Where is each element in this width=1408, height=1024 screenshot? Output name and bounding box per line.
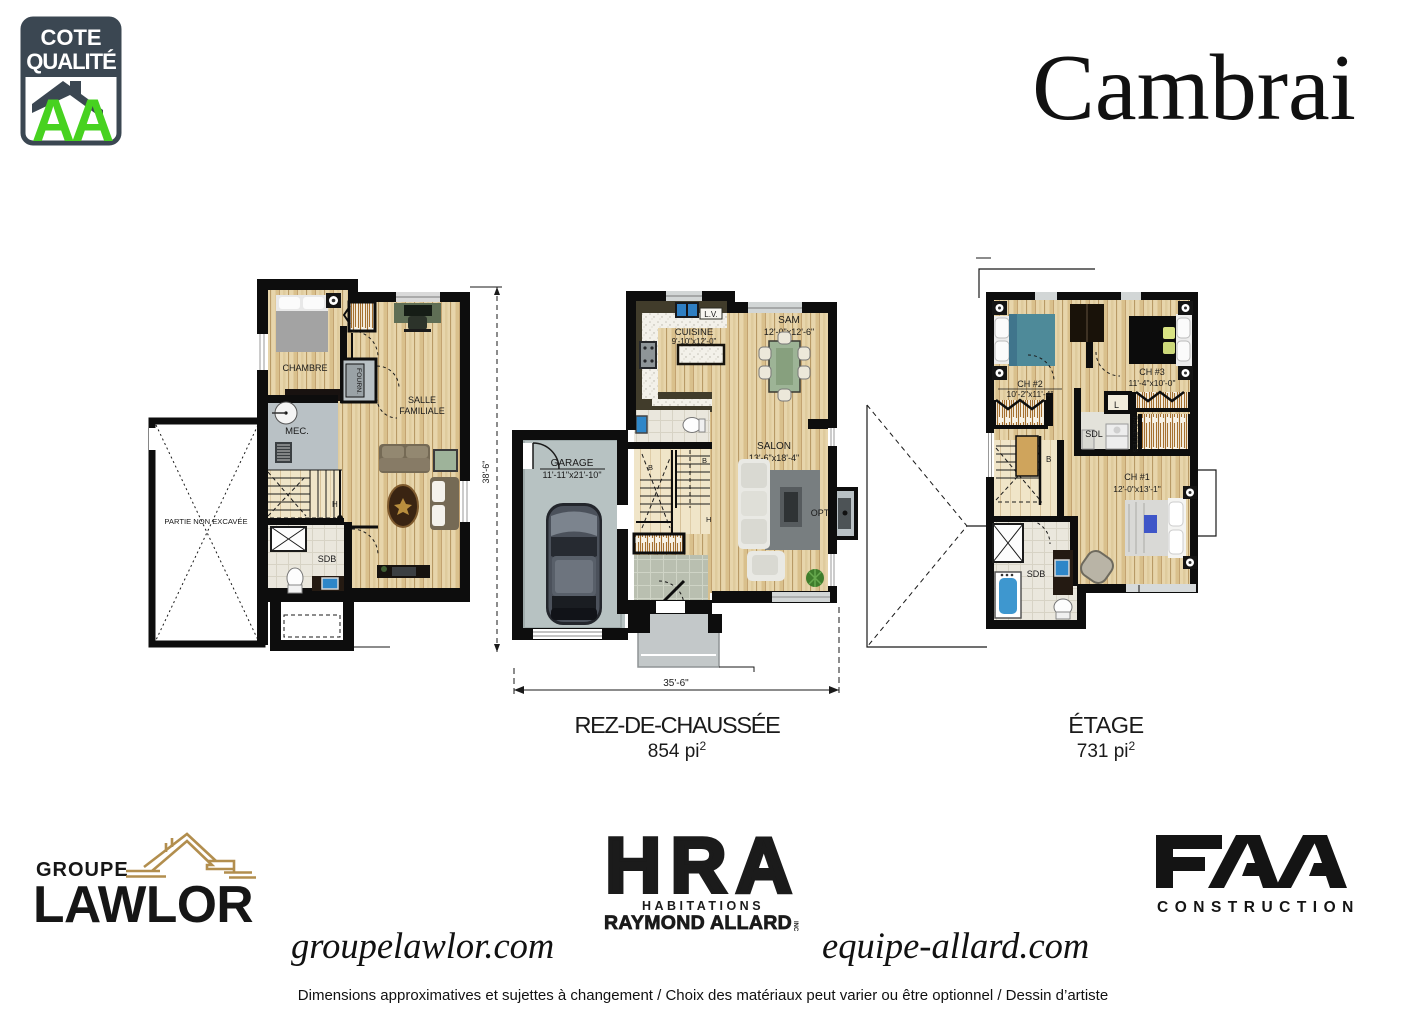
svg-text:INC: INC <box>792 921 798 932</box>
svg-text:HABITATIONS: HABITATIONS <box>642 899 764 913</box>
svg-text:FOURN.: FOURN. <box>355 368 362 394</box>
svg-text:SAM: SAM <box>778 315 800 326</box>
svg-text:SALLE: SALLE <box>408 395 436 405</box>
svg-text:Dimensions approximatives et s: Dimensions approximatives et sujettes à … <box>298 987 1108 1004</box>
svg-text:11'-11"x21'-10": 11'-11"x21'-10" <box>542 470 601 480</box>
svg-text:GARAGE: GARAGE <box>551 458 594 469</box>
svg-text:H: H <box>706 515 711 524</box>
svg-text:TABLETTES: TABLETTES <box>1131 416 1138 453</box>
svg-text:731 pi2: 731 pi2 <box>1077 739 1136 762</box>
svg-text:CH #1: CH #1 <box>1124 472 1150 482</box>
svg-text:FAMILIALE: FAMILIALE <box>399 406 445 416</box>
svg-text:PARTIE NON EXCAVÉE: PARTIE NON EXCAVÉE <box>164 517 247 526</box>
svg-text:B: B <box>1046 455 1051 464</box>
svg-text:RAYMOND ALLARD: RAYMOND ALLARD <box>604 912 792 934</box>
svg-text:COTE: COTE <box>40 25 101 50</box>
svg-text:groupelawlor.com: groupelawlor.com <box>291 925 554 966</box>
svg-text:L.V.: L.V. <box>704 310 718 319</box>
svg-text:SDL: SDL <box>1085 429 1103 439</box>
svg-text:CONSTRUCTION: CONSTRUCTION <box>1157 899 1360 916</box>
svg-text:SALON: SALON <box>757 441 791 452</box>
svg-text:ÉTAGE: ÉTAGE <box>1068 712 1143 738</box>
svg-text:B: B <box>702 456 707 465</box>
svg-text:CHAMBRE: CHAMBRE <box>282 363 327 373</box>
svg-text:OPT: OPT <box>811 508 830 518</box>
svg-text:854 pi2: 854 pi2 <box>648 739 707 762</box>
svg-text:QUALITÉ: QUALITÉ <box>26 49 116 74</box>
svg-text:B: B <box>648 463 653 472</box>
svg-text:LAWLOR: LAWLOR <box>33 875 253 933</box>
svg-text:10'-2"x11'-4": 10'-2"x11'-4" <box>1007 389 1054 399</box>
svg-text:SDB: SDB <box>1027 569 1046 579</box>
svg-text:38'-6": 38'-6" <box>481 461 491 484</box>
svg-text:L: L <box>1114 400 1119 410</box>
svg-text:HRA: HRA <box>605 821 801 909</box>
svg-text:Cambrai: Cambrai <box>1032 36 1356 140</box>
svg-text:equipe-allard.com: equipe-allard.com <box>822 925 1089 966</box>
svg-text:REZ-DE-CHAUSSÉE: REZ-DE-CHAUSSÉE <box>574 712 780 738</box>
svg-text:11'-4"x10'-0": 11'-4"x10'-0" <box>1129 378 1176 388</box>
svg-text:CH #2: CH #2 <box>1017 379 1043 389</box>
svg-text:MEC.: MEC. <box>285 426 309 437</box>
svg-text:SDB: SDB <box>318 554 337 564</box>
svg-text:AA: AA <box>32 87 113 154</box>
svg-text:CH #3: CH #3 <box>1139 367 1165 377</box>
svg-text:35'-6": 35'-6" <box>663 678 689 689</box>
svg-text:H: H <box>332 500 338 509</box>
svg-text:9'-10"x12'-0": 9'-10"x12'-0" <box>672 337 717 346</box>
svg-text:12'-0"x13'-1": 12'-0"x13'-1" <box>1113 484 1161 494</box>
